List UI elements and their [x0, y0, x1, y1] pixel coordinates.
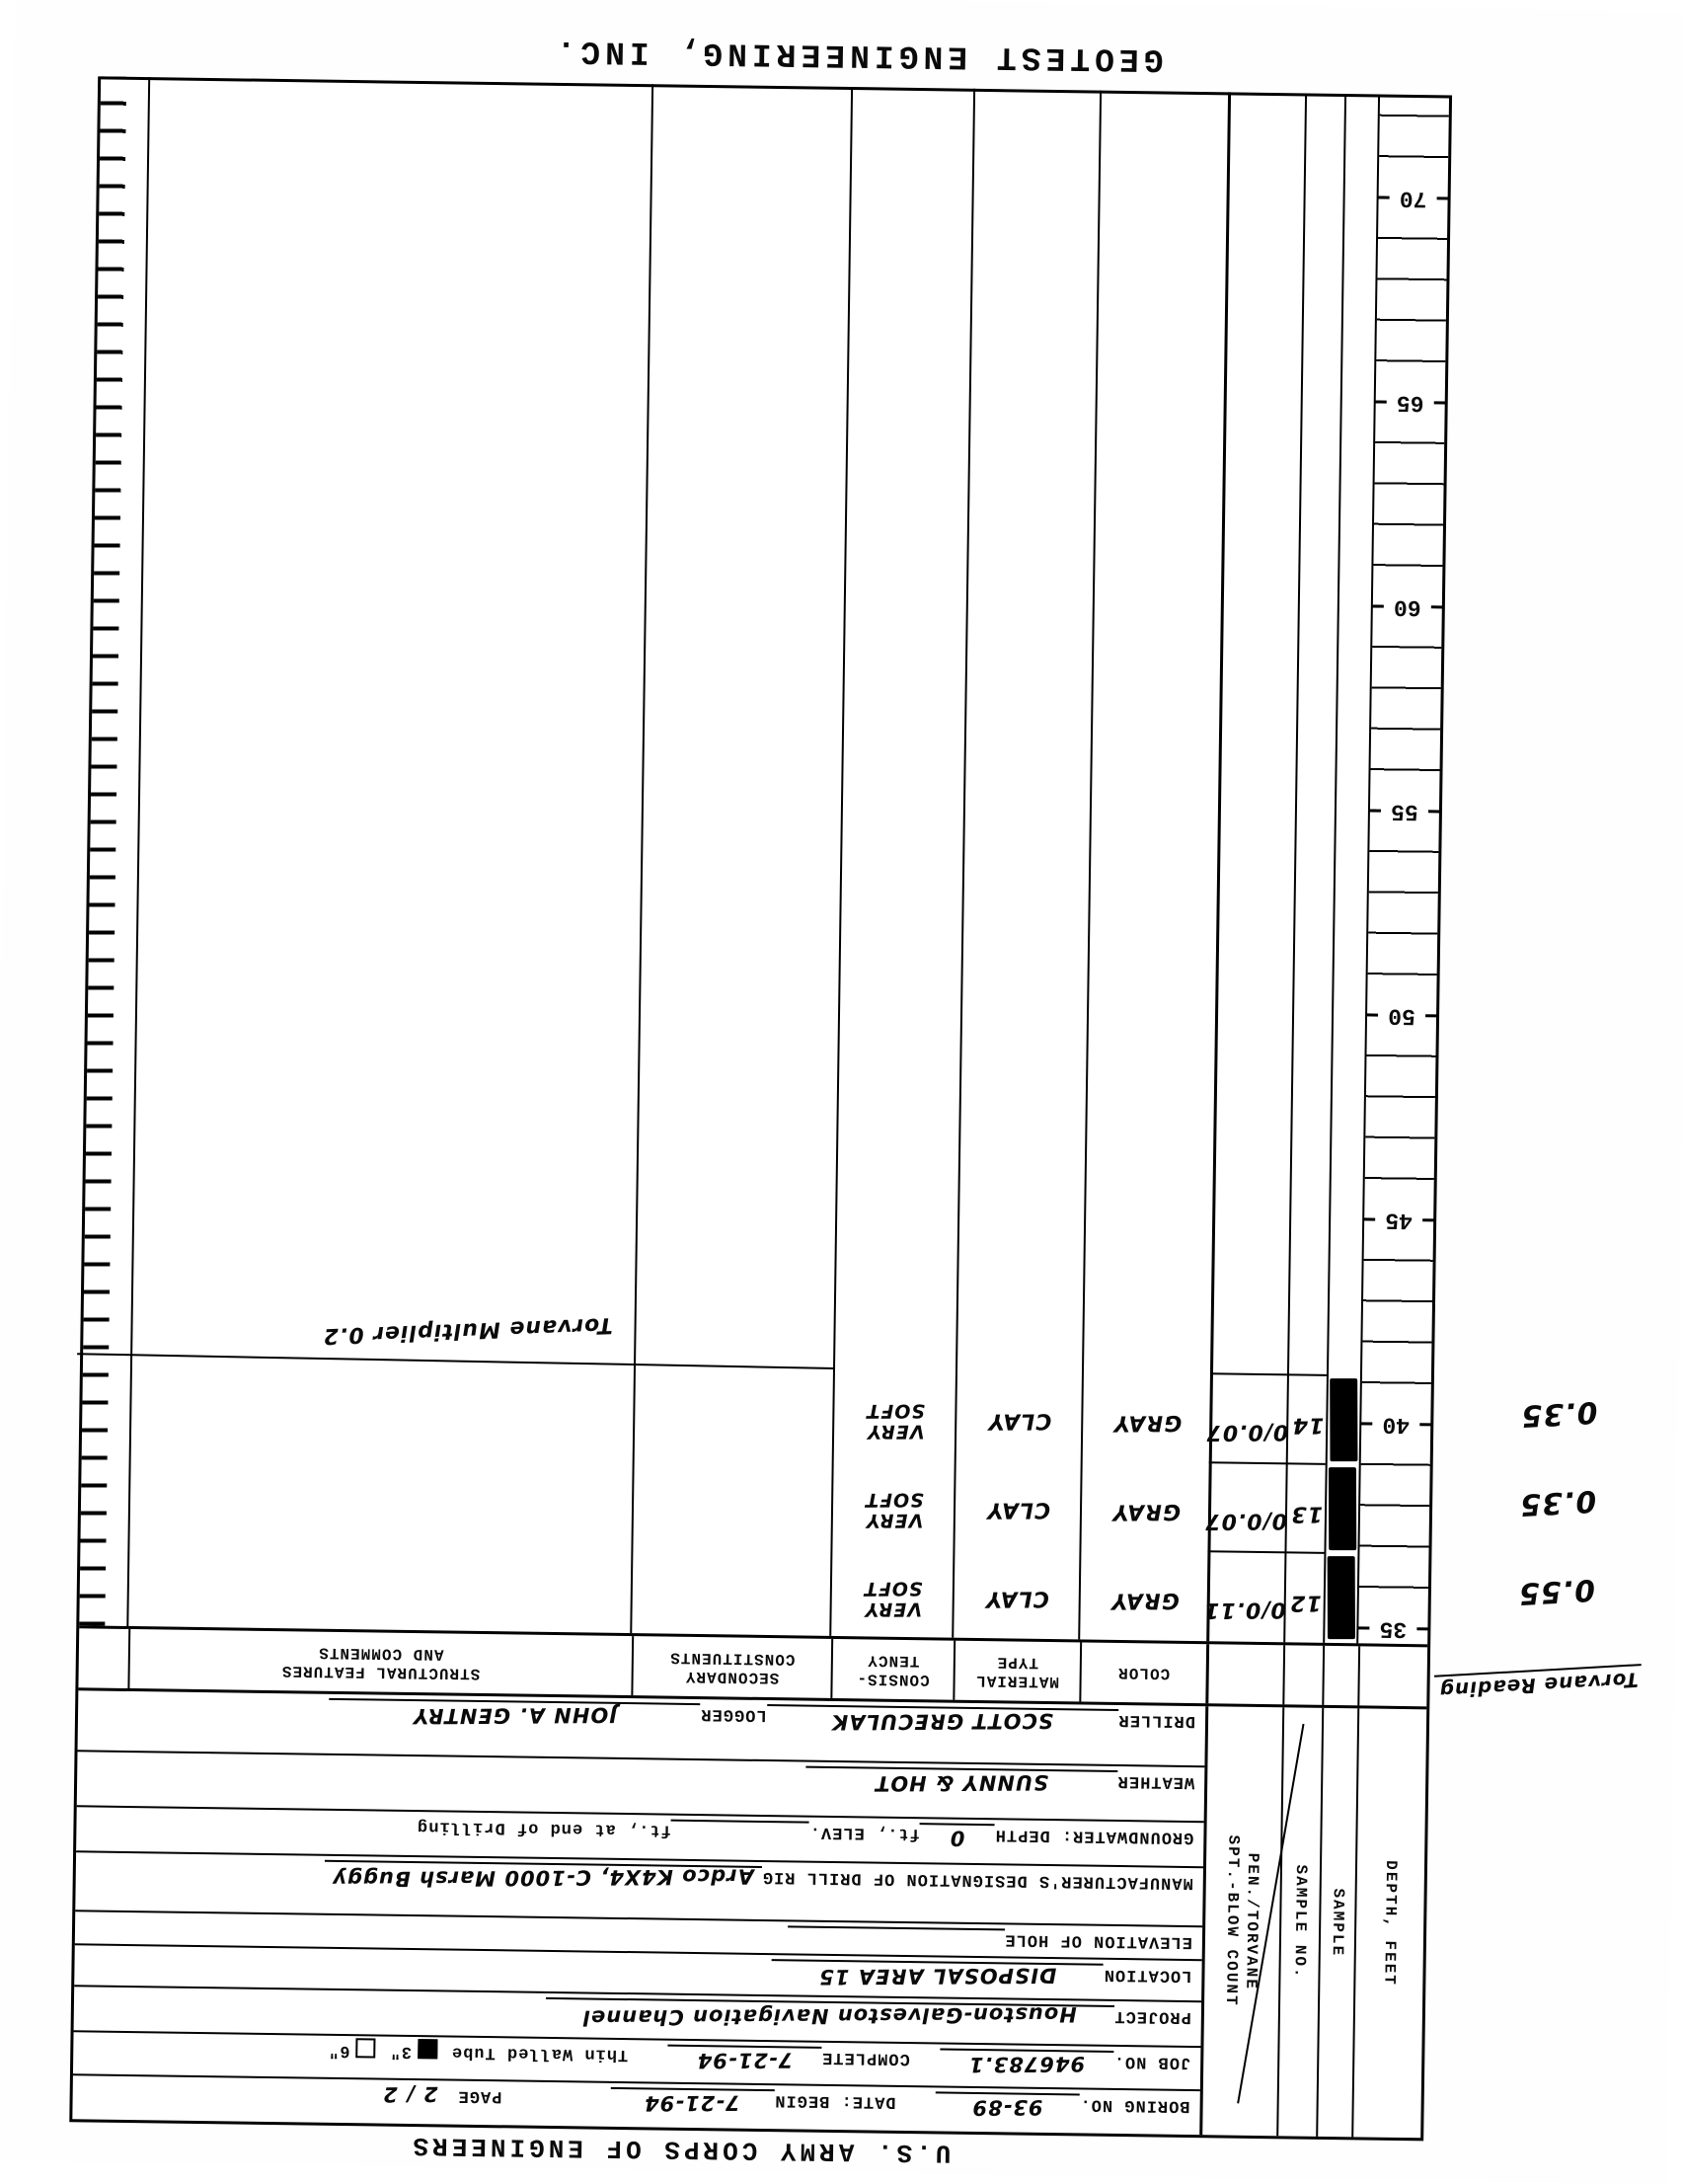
pen-torvane-column-header: PEN./TORVANE SPT.-BLOW COUNT — [1199, 1706, 1282, 2136]
groundwater-end-label: ft., at end of Drilling — [417, 1816, 671, 1839]
material-value: CLAY — [985, 1586, 1049, 1610]
torvane-reading-value: 0.35 — [1485, 1395, 1633, 1432]
depth-column-header: DEPTH, FEET — [1351, 1708, 1426, 2138]
spt-blow-count-label: SPT.-BLOW COUNT — [1223, 1834, 1243, 2006]
tube-3in-label: 3" — [389, 2041, 412, 2061]
depth-column-label: DEPTH, FEET — [1380, 1860, 1400, 1987]
material-cell: CLAY — [956, 1407, 1083, 1435]
consistency-cell: VERY SOFT — [833, 1486, 956, 1531]
location-field: DISPOSAL AREA 15 — [772, 1959, 1104, 1989]
sample-no-cell: 12 — [1286, 1589, 1326, 1615]
spacer — [628, 2044, 667, 2045]
boring-log-table: DEPTH, FEET SAMPLE SAMPLE NO. PEN./TORVA… — [69, 76, 1452, 2141]
color-header-label: COLOR — [1117, 1663, 1170, 1682]
depth-label: 40 — [1367, 1411, 1424, 1438]
job-no-field: 946783.1 — [940, 2048, 1113, 2074]
material-header-line2: TYPE — [997, 1652, 1039, 1672]
structural-features-header: STRUCTURAL FEATURES AND COMMENTS — [127, 1629, 632, 1695]
driller-label: DRILLER — [1118, 1709, 1196, 1730]
weather-field: SUNNY & HOT — [805, 1766, 1117, 1795]
depth-label: 60 — [1379, 594, 1436, 621]
company-title: GEOTEST ENGINEERING, INC. — [215, 28, 1498, 82]
rig-value: Ardco K4X4, C-1000 Marsh Buggy — [332, 1866, 754, 1889]
tube-6in-label: 6" — [328, 2040, 350, 2060]
driller-value: SCOTT GRECULAK — [831, 1711, 1053, 1733]
weather-label: WEATHER — [1117, 1770, 1195, 1791]
consistency-header-line1: CONSIS- — [856, 1669, 929, 1688]
pen-torvane-cell: 0/0.07 — [1211, 1507, 1287, 1533]
torvane-reading-text: 0.35 — [1520, 1394, 1599, 1433]
page-value: 2 / 2 — [382, 2084, 438, 2104]
color-value: GRAY — [1113, 1410, 1183, 1435]
torvane-reading-value: 0.35 — [1484, 1484, 1632, 1521]
groundwater-depth-field: 0 — [920, 1823, 995, 1848]
logger-label: LOGGER — [700, 1703, 766, 1724]
sample-no-header-cell — [1282, 1645, 1323, 1705]
material-value: CLAY — [988, 1408, 1052, 1433]
tube-label: Thin Walled Tube — [451, 2042, 628, 2065]
tube-3in-checkbox-checked — [418, 2039, 437, 2059]
sample-bar — [1328, 1556, 1355, 1639]
boring-no-label: BORING NO. — [1079, 2093, 1189, 2115]
date-begin-label: DATE: BEGIN — [774, 2089, 895, 2111]
material-cell: CLAY — [955, 1585, 1081, 1612]
pen-header-cell — [1205, 1644, 1283, 1704]
sample-column-header: SAMPLE — [1316, 1708, 1357, 2137]
material-value: CLAY — [987, 1497, 1051, 1521]
consistency-cell: VERY SOFT — [831, 1575, 955, 1620]
column-border — [630, 84, 653, 1633]
depth-label: 45 — [1370, 1208, 1427, 1234]
sample-no-cell: 13 — [1287, 1500, 1327, 1526]
sample-column-label: SAMPLE — [1329, 1888, 1347, 1957]
rig-field: Ardco K4X4, C-1000 Marsh Buggy — [324, 1860, 762, 1891]
structural-header-line1: STRUCTURAL FEATURES — [281, 1661, 481, 1682]
form-rows: BORING NO. 93-89 DATE: BEGIN 7-21-94 PAG… — [72, 1690, 1205, 2135]
pen-torvane-cell: 0/0.11 — [1209, 1596, 1285, 1622]
spacer — [896, 2091, 936, 2092]
ruler-ticks — [79, 76, 126, 1625]
material-header-line1: MATERIAL — [975, 1671, 1059, 1690]
depth-label: 55 — [1376, 799, 1433, 825]
depth-label: 50 — [1373, 1003, 1430, 1030]
color-cell: GRAY — [1082, 1497, 1211, 1524]
rig-label: MANUFACTURER'S DESIGNATION OF DRILL RIG — [762, 1866, 1193, 1892]
elevation-field — [787, 1925, 1004, 1944]
ruler-header-cell — [78, 1628, 128, 1688]
logger-value: JOHN A. GENTRY — [413, 1705, 617, 1726]
column-border — [1206, 92, 1231, 1641]
date-begin-value: 7-21-94 — [645, 2093, 741, 2114]
sample-no-value: 13 — [1291, 1502, 1324, 1526]
torvane-reading-text: 0.35 — [1518, 1483, 1597, 1521]
column-border — [1078, 91, 1102, 1640]
torvane-reading-heading-text: Torvane Reading — [1434, 1664, 1643, 1703]
torvane-reading-text: 0.55 — [1517, 1572, 1596, 1610]
job-no-value: 946783.1 — [968, 2054, 1085, 2074]
torvane-reading-value: 0.55 — [1483, 1573, 1631, 1609]
row-boundary — [1207, 1550, 1324, 1554]
color-value: GRAY — [1110, 1588, 1180, 1612]
consistency-header-line2: TENCY — [867, 1650, 919, 1670]
project-value: Houston-Galveston Navigation Channel — [582, 2004, 1077, 2027]
torvane-reading-heading: Torvane Reading — [1454, 1669, 1642, 1699]
groundwater-depth-value: 0 — [950, 1829, 965, 1848]
tube-6in-checkbox-unchecked — [356, 2038, 376, 2058]
sample-no-cell: 14 — [1288, 1411, 1328, 1438]
groundwater-label: GROUNDWATER: DEPTH — [995, 1824, 1194, 1846]
sample-no-value: 14 — [1292, 1413, 1325, 1438]
elevation-label: ELEVATION OF HOLE — [1004, 1928, 1192, 1951]
depth-ladder — [1358, 99, 1449, 1630]
project-label: PROJECT — [1113, 2005, 1191, 2026]
pen-torvane-value: 0/0.11 — [1203, 1597, 1286, 1622]
page-label: PAGE — [457, 2085, 501, 2106]
torvane-multiplier-note: Torvane Multiplier 0.2 — [197, 1314, 612, 1345]
sample-bar — [1330, 1378, 1357, 1461]
row-boundary — [1209, 1461, 1326, 1465]
material-type-header: MATERIAL TYPE — [953, 1641, 1080, 1702]
logger-field: JOHN A. GENTRY — [329, 1698, 700, 1728]
boring-no-field: 93-89 — [935, 2091, 1079, 2118]
torvane-multiplier-text: Torvane Multiplier 0.2 — [322, 1312, 613, 1348]
location-value: DISPOSAL AREA 15 — [818, 1966, 1056, 1988]
pen-torvane-label: PEN./TORVANE — [1243, 1852, 1262, 1989]
color-cell: GRAY — [1083, 1408, 1212, 1436]
scanned-boring-log-sheet: U.S. ARMY CORPS OF ENGINEERS DEPTH, FEET… — [0, 0, 1682, 2184]
spacer — [502, 2085, 611, 2087]
material-cell: CLAY — [956, 1496, 1082, 1523]
date-begin-field: 7-21-94 — [610, 2087, 774, 2114]
consistency-cell: VERY SOFT — [834, 1397, 957, 1443]
secondary-header-line1: SECONDARY — [685, 1667, 780, 1686]
project-field: Houston-Galveston Navigation Channel — [545, 1997, 1113, 2030]
secondary-constituents-header: SECONDARY CONSTITUENTS — [631, 1636, 831, 1698]
boring-no-value: 93-89 — [971, 2097, 1042, 2118]
weather-value: SUNNY & HOT — [875, 1772, 1048, 1793]
tick-ruler-column — [79, 76, 150, 1626]
groundwater-elev-field — [671, 1820, 809, 1837]
complete-field: 7-21-94 — [667, 2045, 821, 2071]
complete-value: 7-21-94 — [696, 2050, 793, 2070]
column-border — [1283, 93, 1307, 1642]
location-label: LOCATION — [1104, 1964, 1192, 1985]
driller-field: SCOTT GRECULAK — [766, 1704, 1117, 1734]
pen-torvane-value: 0/0.07 — [1205, 1419, 1288, 1444]
consistency-header: CONSIS- TENCY — [830, 1639, 954, 1700]
pen-torvane-value: 0/0.07 — [1204, 1508, 1287, 1533]
complete-label: COMPLETE — [821, 2047, 910, 2067]
log-grid: 35 40 45 50 55 60 65 70 0/0.11 12 GRAY C… — [79, 76, 1449, 1644]
sample-bar — [1329, 1467, 1356, 1550]
pen-torvane-cell: 0/0.07 — [1212, 1418, 1288, 1444]
color-value: GRAY — [1112, 1499, 1182, 1523]
structural-header-line2: AND COMMENTS — [318, 1643, 443, 1664]
depth-header-cell — [1357, 1646, 1427, 1706]
sample-no-value: 12 — [1289, 1591, 1322, 1615]
consistency-value: VERY SOFT — [832, 1577, 955, 1619]
sample-header-cell — [1322, 1646, 1358, 1705]
consistency-value: VERY SOFT — [834, 1399, 956, 1442]
groundwater-mid-label: ft., ELEV. — [809, 1822, 920, 1843]
sample-no-column-label: SAMPLE NO. — [1290, 1864, 1310, 1979]
depth-label: 65 — [1382, 390, 1439, 417]
depth-label: 35 — [1364, 1615, 1421, 1642]
secondary-header-line2: CONSTITUENTS — [669, 1648, 795, 1669]
color-header: COLOR — [1079, 1642, 1206, 1703]
sample-no-column-header: SAMPLE NO. — [1276, 1707, 1322, 2137]
form-header-block: DEPTH, FEET SAMPLE SAMPLE NO. PEN./TORVA… — [72, 1687, 1426, 2138]
color-cell: GRAY — [1081, 1586, 1210, 1613]
consistency-value: VERY SOFT — [833, 1488, 956, 1530]
job-no-label: JOB NO. — [1113, 2051, 1191, 2071]
depth-label: 70 — [1384, 186, 1441, 212]
row-boundary — [1210, 1372, 1327, 1376]
stratum-boundary-line — [77, 1353, 835, 1369]
